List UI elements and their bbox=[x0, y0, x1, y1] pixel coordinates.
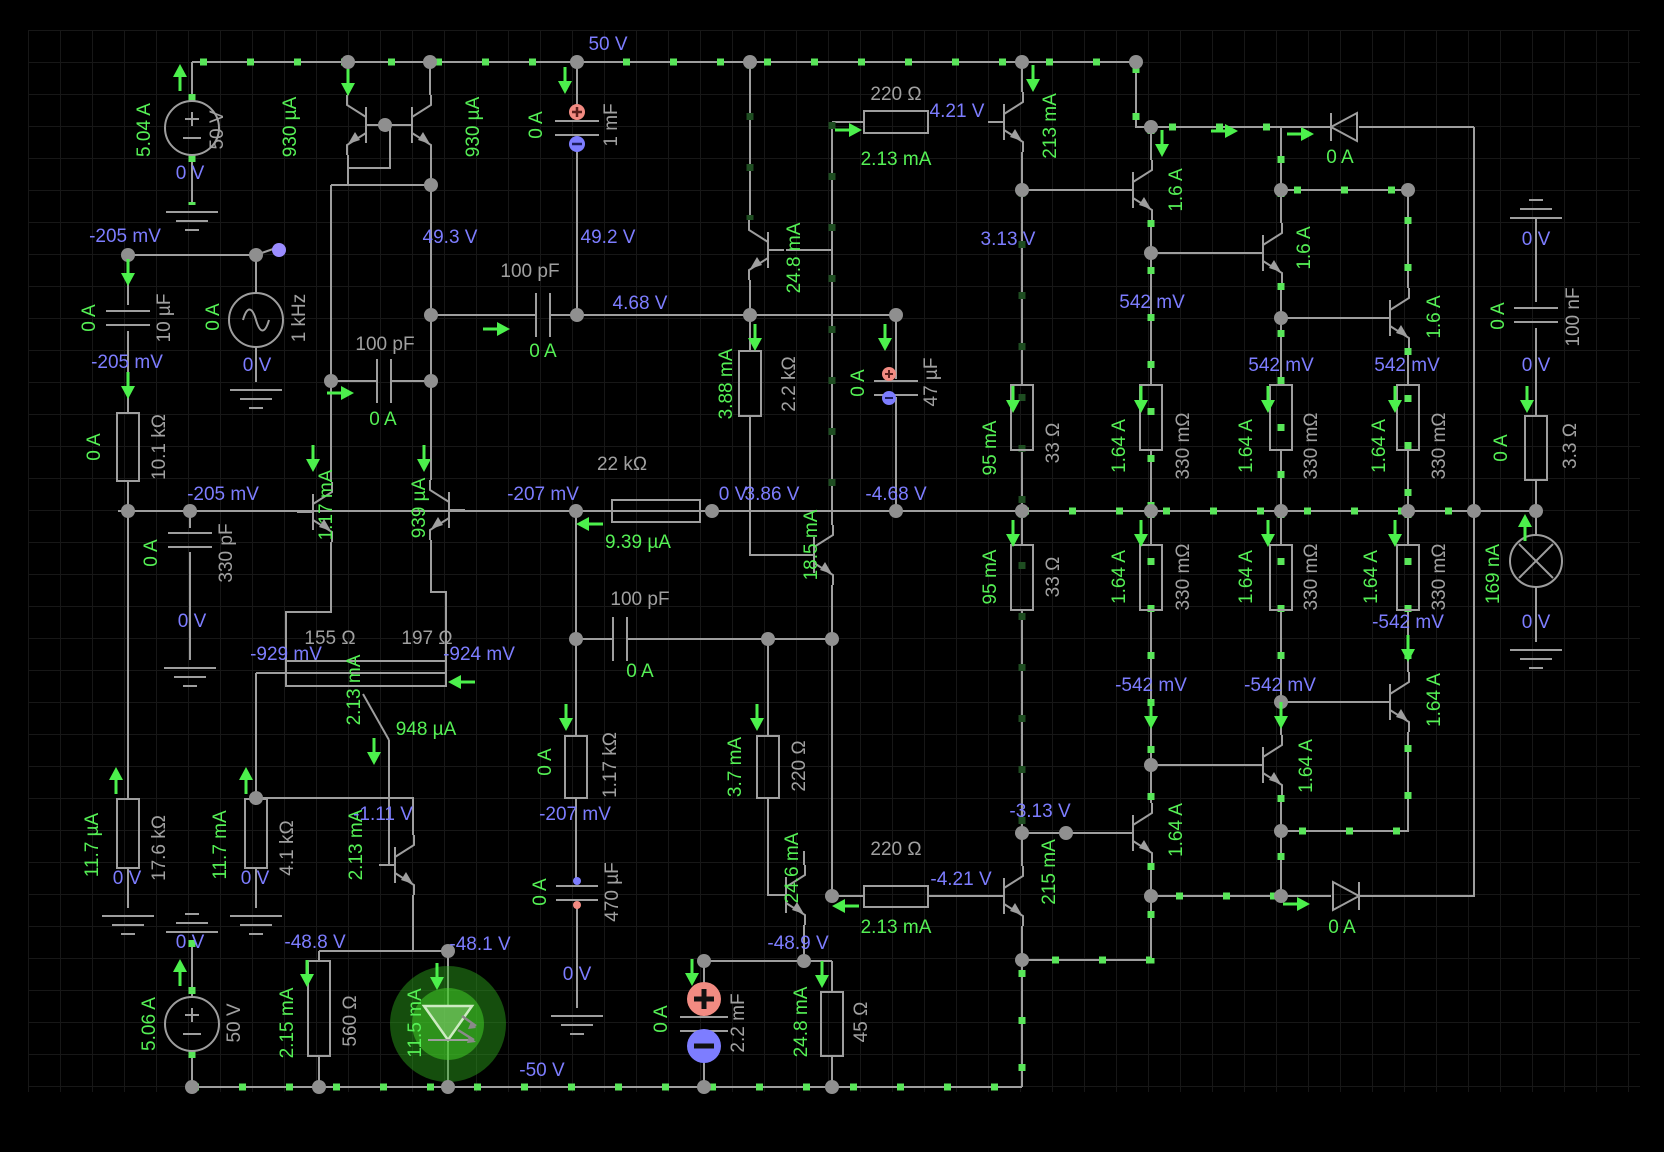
ground-icon bbox=[230, 916, 282, 934]
voltage-label: 0 V bbox=[1522, 355, 1551, 377]
capacitor-330pF bbox=[168, 533, 212, 547]
voltage-label: -48.9 V bbox=[767, 933, 828, 955]
component-value-label: 17.6 kΩ bbox=[149, 815, 171, 881]
ground-icon bbox=[164, 668, 216, 686]
current-label: 0 A bbox=[369, 409, 396, 431]
ground-icon bbox=[166, 212, 218, 230]
component-value-label: 50 V bbox=[224, 1003, 246, 1042]
transistors[interactable] bbox=[297, 92, 1409, 926]
current-label: 24.8 mA bbox=[784, 223, 806, 294]
voltage-label: -4.21 V bbox=[930, 869, 991, 891]
voltage-label: 0 V bbox=[243, 355, 272, 377]
component-value-label: 1.17 kΩ bbox=[600, 732, 622, 798]
current-label: 0 A bbox=[1326, 147, 1353, 169]
resistor-10.1k bbox=[117, 413, 139, 481]
component-value-label: 100 pF bbox=[610, 589, 669, 611]
capacitor-100pF-c bbox=[613, 617, 627, 661]
lamp-icon[interactable] bbox=[1510, 535, 1562, 587]
current-label: 1.64 A bbox=[1296, 739, 1318, 793]
current-label: 0 A bbox=[848, 369, 870, 396]
voltage-label: 4.21 V bbox=[930, 101, 985, 123]
voltage-label: -542 mV bbox=[1372, 612, 1444, 634]
current-label: 0 A bbox=[529, 341, 556, 363]
resistor-330m-4 bbox=[1140, 545, 1162, 610]
voltage-label: -542 mV bbox=[1115, 675, 1187, 697]
current-label: 0 A bbox=[203, 303, 225, 330]
component-value-label: 50 V bbox=[207, 110, 229, 149]
voltage-label: -50 V bbox=[519, 1060, 564, 1082]
component-value-label: 47 µF bbox=[921, 358, 943, 407]
current-label: 5.04 A bbox=[134, 103, 156, 157]
component-value-label: 3.3 Ω bbox=[1560, 423, 1582, 469]
component-value-label: 10 µF bbox=[154, 294, 176, 343]
component-value-label: 330 pF bbox=[216, 523, 238, 582]
component-value-label: 470 µF bbox=[602, 862, 624, 922]
current-label: 2.13 mA bbox=[861, 917, 932, 939]
voltage-label: -48.8 V bbox=[284, 932, 345, 954]
component-value-label: 330 mΩ bbox=[1173, 543, 1195, 610]
voltage-label: -205 mV bbox=[91, 352, 163, 374]
current-label: 95 mA bbox=[980, 421, 1002, 476]
current-label: 95 mA bbox=[980, 550, 1002, 605]
current-label: 0 A bbox=[626, 661, 653, 683]
resistor-330m-6 bbox=[1397, 545, 1419, 610]
resistor-330m-1 bbox=[1140, 385, 1162, 450]
pnp-transistor bbox=[1374, 672, 1409, 732]
voltage-label: 542 mV bbox=[1374, 355, 1439, 377]
current-label: 2.13 mA bbox=[861, 149, 932, 171]
component-value-label: 2.2 kΩ bbox=[779, 356, 801, 411]
current-label: 1.64 A bbox=[1109, 550, 1131, 604]
resistor-2.2k bbox=[739, 351, 761, 416]
current-label: 1.64 A bbox=[1236, 550, 1258, 604]
component-value-label: 155 Ω bbox=[304, 628, 355, 650]
capacitor-1mF bbox=[555, 121, 599, 135]
voltage-label: 0 V bbox=[176, 163, 205, 185]
current-label: 2.13 mA bbox=[344, 655, 366, 726]
component-value-label: 4.1 kΩ bbox=[277, 820, 299, 875]
current-label: 11.7 mA bbox=[210, 810, 232, 879]
current-label: 24.6 mA bbox=[782, 833, 804, 904]
current-label: 1.6 A bbox=[1424, 295, 1446, 338]
current-label: 0 A bbox=[79, 304, 101, 331]
current-label: 18.5 mA bbox=[801, 510, 823, 581]
component-value-label: 1 mF bbox=[601, 103, 623, 146]
npn-transistor bbox=[1374, 288, 1409, 348]
component-value-label: 33 Ω bbox=[1043, 423, 1065, 464]
resistor-3.3 bbox=[1525, 416, 1547, 480]
capacitor-10uF bbox=[106, 311, 150, 325]
current-label: 0 A bbox=[141, 539, 163, 566]
input-switch[interactable] bbox=[272, 243, 286, 257]
component-value-label: 220 Ω bbox=[789, 740, 811, 791]
circuit-canvas[interactable]: 5.04 A930 µA930 µA0 A2.13 mA213 mA1.6 A1… bbox=[0, 0, 1664, 1152]
resistor-45 bbox=[821, 992, 843, 1056]
current-label: 5.06 A bbox=[139, 997, 161, 1051]
voltage-label: -205 mV bbox=[187, 484, 259, 506]
resistor-330m-2 bbox=[1270, 385, 1292, 450]
current-label: 1.6 A bbox=[1166, 168, 1188, 211]
voltage-label: 0 V bbox=[241, 868, 270, 890]
current-label: 1.64 A bbox=[1424, 673, 1446, 727]
ground-icon bbox=[1510, 650, 1562, 668]
voltage-label: -207 mV bbox=[539, 804, 611, 826]
component-value-label: 330 mΩ bbox=[1301, 412, 1323, 479]
current-label: 939 µA bbox=[409, 478, 431, 539]
voltage-label: 0 V bbox=[178, 611, 207, 633]
voltage-label: -48.1 V bbox=[449, 934, 510, 956]
ac-source bbox=[229, 293, 283, 347]
current-label: 0 A bbox=[1328, 917, 1355, 939]
component-value-label: 1 kHz bbox=[289, 294, 311, 343]
capacitor-100pF-a bbox=[377, 359, 391, 403]
component-value-label: 100 pF bbox=[355, 334, 414, 356]
voltage-label: -542 mV bbox=[1244, 675, 1316, 697]
voltage-label: 0 V bbox=[176, 932, 205, 954]
capacitor-2.2mF bbox=[680, 1017, 728, 1031]
component-value-label: 560 Ω bbox=[340, 995, 362, 1046]
current-label: 948 µA bbox=[396, 719, 457, 741]
resistor-4.1k bbox=[245, 799, 267, 868]
current-label: 0 A bbox=[526, 111, 548, 138]
voltage-label: 0 V bbox=[113, 868, 142, 890]
current-label: 3.88 mA bbox=[716, 349, 738, 420]
resistor-330m-5 bbox=[1270, 545, 1292, 610]
resistor-330m-3 bbox=[1397, 385, 1419, 450]
voltage-label: -1.11 V bbox=[353, 804, 413, 826]
resistor-17.6k bbox=[117, 799, 139, 868]
dc-source-bottom bbox=[165, 997, 219, 1051]
current-label: 0 A bbox=[530, 878, 552, 905]
current-label: 2.15 mA bbox=[277, 988, 299, 1059]
diode-top bbox=[1331, 113, 1357, 141]
current-label: 930 µA bbox=[280, 97, 302, 158]
pnp-transistor bbox=[988, 866, 1023, 926]
voltage-label: -4.68 V bbox=[865, 484, 926, 506]
voltage-label: 49.2 V bbox=[581, 227, 636, 249]
component-value-label: 10.1 kΩ bbox=[149, 414, 171, 480]
voltage-label: 0 V bbox=[1522, 612, 1551, 634]
component-value-label: 22 kΩ bbox=[597, 454, 647, 476]
voltage-label: 542 mV bbox=[1119, 292, 1184, 314]
current-label: 1.64 A bbox=[1369, 419, 1391, 473]
current-label: 0 A bbox=[84, 433, 106, 460]
voltage-label: 0 V bbox=[1522, 229, 1551, 251]
npn-transistor bbox=[988, 92, 1023, 152]
resistor-33-bot bbox=[1011, 545, 1033, 610]
resistor-220-top bbox=[864, 111, 928, 133]
current-label: 1.17 mA bbox=[316, 470, 338, 541]
pnp-transistor bbox=[347, 95, 382, 155]
capacitor-47uF bbox=[874, 381, 918, 395]
pnp-transistor bbox=[1117, 803, 1152, 863]
ground-icon-inverted bbox=[1510, 200, 1562, 218]
component-value-label: 45 Ω bbox=[851, 1002, 873, 1043]
voltage-label: -207 mV bbox=[507, 484, 579, 506]
component-value-label: 220 Ω bbox=[870, 839, 921, 861]
voltage-label: 4.68 V bbox=[613, 293, 668, 315]
component-value-label: 330 mΩ bbox=[1429, 412, 1451, 479]
ground-icon bbox=[551, 1016, 603, 1034]
current-label: 1.64 A bbox=[1166, 803, 1188, 857]
schematic bbox=[0, 0, 1664, 1152]
npn-transistor bbox=[1117, 160, 1152, 220]
voltage-label: -205 mV bbox=[89, 226, 161, 248]
current-label: 3.7 mA bbox=[725, 737, 747, 797]
voltage-label: 542 mV bbox=[1248, 355, 1313, 377]
voltage-label: -924 mV bbox=[443, 644, 515, 666]
current-label: 11.7 µA bbox=[82, 813, 104, 877]
capacitor-100pF-b bbox=[536, 293, 550, 337]
voltage-label: 0 V bbox=[719, 484, 748, 506]
current-label: 0 A bbox=[651, 1005, 673, 1032]
pnp-transistor bbox=[749, 220, 784, 280]
current-label: 1.64 A bbox=[1236, 419, 1258, 473]
component-value-label: 220 Ω bbox=[870, 84, 921, 106]
current-label: 9.39 µA bbox=[605, 532, 671, 554]
component-value-label: 2.2 mF bbox=[728, 993, 750, 1052]
current-label: 24.8 mA bbox=[791, 987, 813, 1058]
resistor-1.17k bbox=[565, 736, 587, 798]
component-value-label: 197 Ω bbox=[401, 628, 452, 650]
voltage-label: 3.86 V bbox=[745, 484, 800, 506]
voltage-label: 3.13 V bbox=[981, 229, 1036, 251]
npn-transistor bbox=[1247, 223, 1282, 283]
current-label: 0 A bbox=[535, 748, 557, 775]
pnp-transistor bbox=[1247, 735, 1282, 795]
current-label: 0 A bbox=[1488, 302, 1510, 329]
voltage-label: -3.13 V bbox=[1009, 801, 1070, 823]
component-value-label: 100 pF bbox=[500, 261, 559, 283]
ground-icon-inverted bbox=[166, 914, 218, 932]
current-label: 0 A bbox=[1491, 434, 1513, 461]
capacitor-470uF bbox=[556, 886, 598, 900]
current-label: 215 mA bbox=[1039, 839, 1061, 904]
component-value-label: 33 Ω bbox=[1043, 557, 1065, 598]
resistor-220-mid bbox=[757, 736, 779, 798]
component-value-label: 330 mΩ bbox=[1429, 543, 1451, 610]
component-value-label: 330 mΩ bbox=[1301, 543, 1323, 610]
capacitor-100nF bbox=[1514, 308, 1558, 322]
voltage-label: 50 V bbox=[588, 34, 627, 56]
current-label: 1.64 A bbox=[1361, 550, 1383, 604]
pnp-transistor bbox=[396, 95, 431, 155]
current-label: 930 µA bbox=[463, 97, 485, 158]
ground-icon bbox=[102, 916, 154, 934]
component-value-label: 330 mΩ bbox=[1173, 412, 1195, 479]
current-label: 11.5 mA bbox=[405, 988, 427, 1057]
current-label: 169 nA bbox=[1483, 544, 1505, 604]
current-label: 213 mA bbox=[1040, 93, 1062, 158]
current-label: 1.6 A bbox=[1294, 226, 1316, 269]
current-label: 1.64 A bbox=[1109, 419, 1131, 473]
voltage-label: 0 V bbox=[563, 964, 592, 986]
voltage-label: 49.3 V bbox=[423, 227, 478, 249]
diode-bottom bbox=[1333, 882, 1359, 910]
ground-icon bbox=[230, 390, 282, 408]
resistor-220-bot bbox=[864, 886, 928, 907]
npn-transistor bbox=[379, 835, 414, 895]
component-value-label: 100 nF bbox=[1563, 287, 1585, 346]
